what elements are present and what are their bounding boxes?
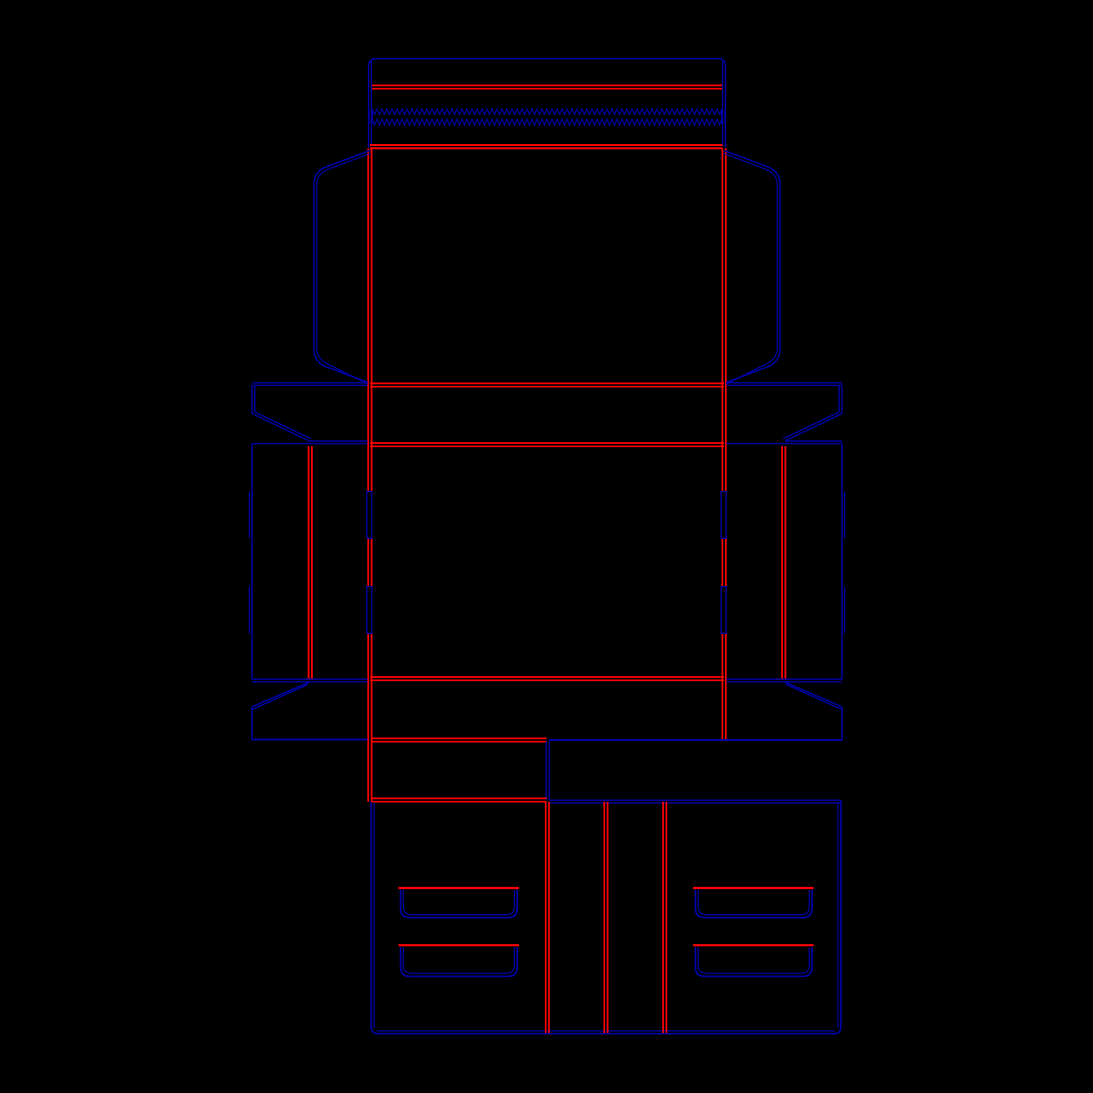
tear-strip-zigzag-2 bbox=[372, 119, 722, 126]
handle-slot-cut-left-2-inner bbox=[403, 947, 514, 973]
top-band-gusset-diagonal-left bbox=[252, 412, 311, 441]
base-fold-slot-right-2 bbox=[721, 587, 726, 634]
lid-main-fold bbox=[370, 145, 723, 148]
top-band-upper-cut-right bbox=[726, 383, 842, 386]
dust-flap-left-outer bbox=[314, 151, 370, 383]
side-wall-crease-left bbox=[309, 446, 312, 680]
dieline-figure bbox=[0, 0, 1093, 1093]
base-fold-slot-right-1 bbox=[721, 492, 726, 539]
tuck-flap-crease bbox=[372, 85, 722, 88]
top-band-upper-cut-left bbox=[252, 383, 368, 386]
dust-flap-left-inner bbox=[317, 153, 371, 384]
dieline-page: { "canvas": { "width": 1093, "height": 1… bbox=[0, 0, 1093, 1093]
dust-flap-right-inner bbox=[724, 153, 778, 384]
dust-flap-right-outer bbox=[724, 151, 780, 383]
base-bottom-fold bbox=[370, 677, 724, 680]
handle-slot-cut-left-2 bbox=[401, 947, 518, 976]
handle-slot-cut-right-1 bbox=[695, 890, 812, 918]
side-wall-crease-right bbox=[782, 446, 785, 680]
handle-slot-cut-right-1-inner bbox=[698, 890, 809, 915]
lock-panel-crease-1 bbox=[546, 802, 549, 1033]
lock-panel-crease-2 bbox=[604, 802, 607, 1033]
handle-slot-cut-left-1 bbox=[401, 890, 518, 918]
top-band-side-left bbox=[252, 385, 255, 413]
top-band-side-right bbox=[839, 385, 842, 413]
tuck-flap-outline bbox=[369, 59, 726, 148]
lock-panel-top-cut bbox=[549, 800, 841, 803]
handle-slot-cut-left-1-inner bbox=[403, 890, 514, 915]
tear-strip-zigzag-1 bbox=[372, 109, 722, 115]
handle-slot-cut-right-2-inner bbox=[698, 947, 809, 973]
lock-panel-crease-3 bbox=[663, 802, 666, 1033]
base-fold-slot-left-1 bbox=[367, 492, 372, 539]
bottom-band-gusset-diagonal-left bbox=[252, 682, 310, 710]
top-band-gusset-diagonal-right bbox=[783, 412, 842, 441]
base-top-fold bbox=[370, 443, 724, 446]
base-fold-slot-left-2 bbox=[367, 587, 372, 634]
dieline-svg bbox=[0, 0, 1093, 1093]
bottom-band-gusset-diagonal-right bbox=[784, 682, 842, 710]
lid-fold-left bbox=[368, 148, 371, 801]
neck-bottom-fold bbox=[371, 798, 547, 801]
neck-side-cut bbox=[546, 742, 549, 800]
neck-top-fold bbox=[371, 738, 547, 741]
lid-bottom-fold bbox=[370, 383, 724, 386]
lid-fold-right bbox=[722, 148, 725, 740]
handle-slot-cut-right-2 bbox=[695, 947, 812, 976]
